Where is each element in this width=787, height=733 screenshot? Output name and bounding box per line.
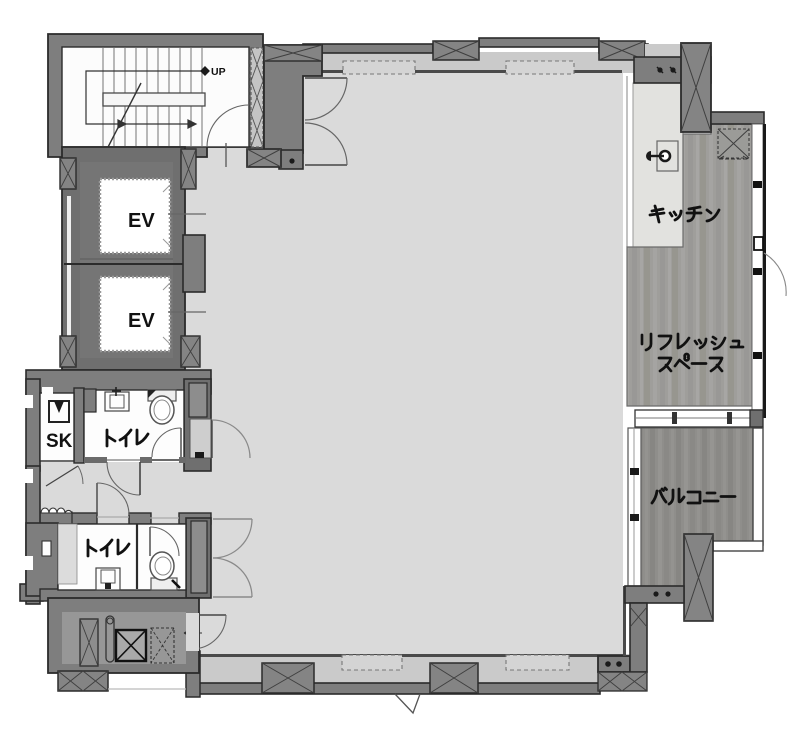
svg-text:UP: UP <box>211 66 226 78</box>
svg-text:EV: EV <box>128 210 155 232</box>
svg-text:EV: EV <box>128 310 155 332</box>
svg-text:SK: SK <box>46 431 73 452</box>
